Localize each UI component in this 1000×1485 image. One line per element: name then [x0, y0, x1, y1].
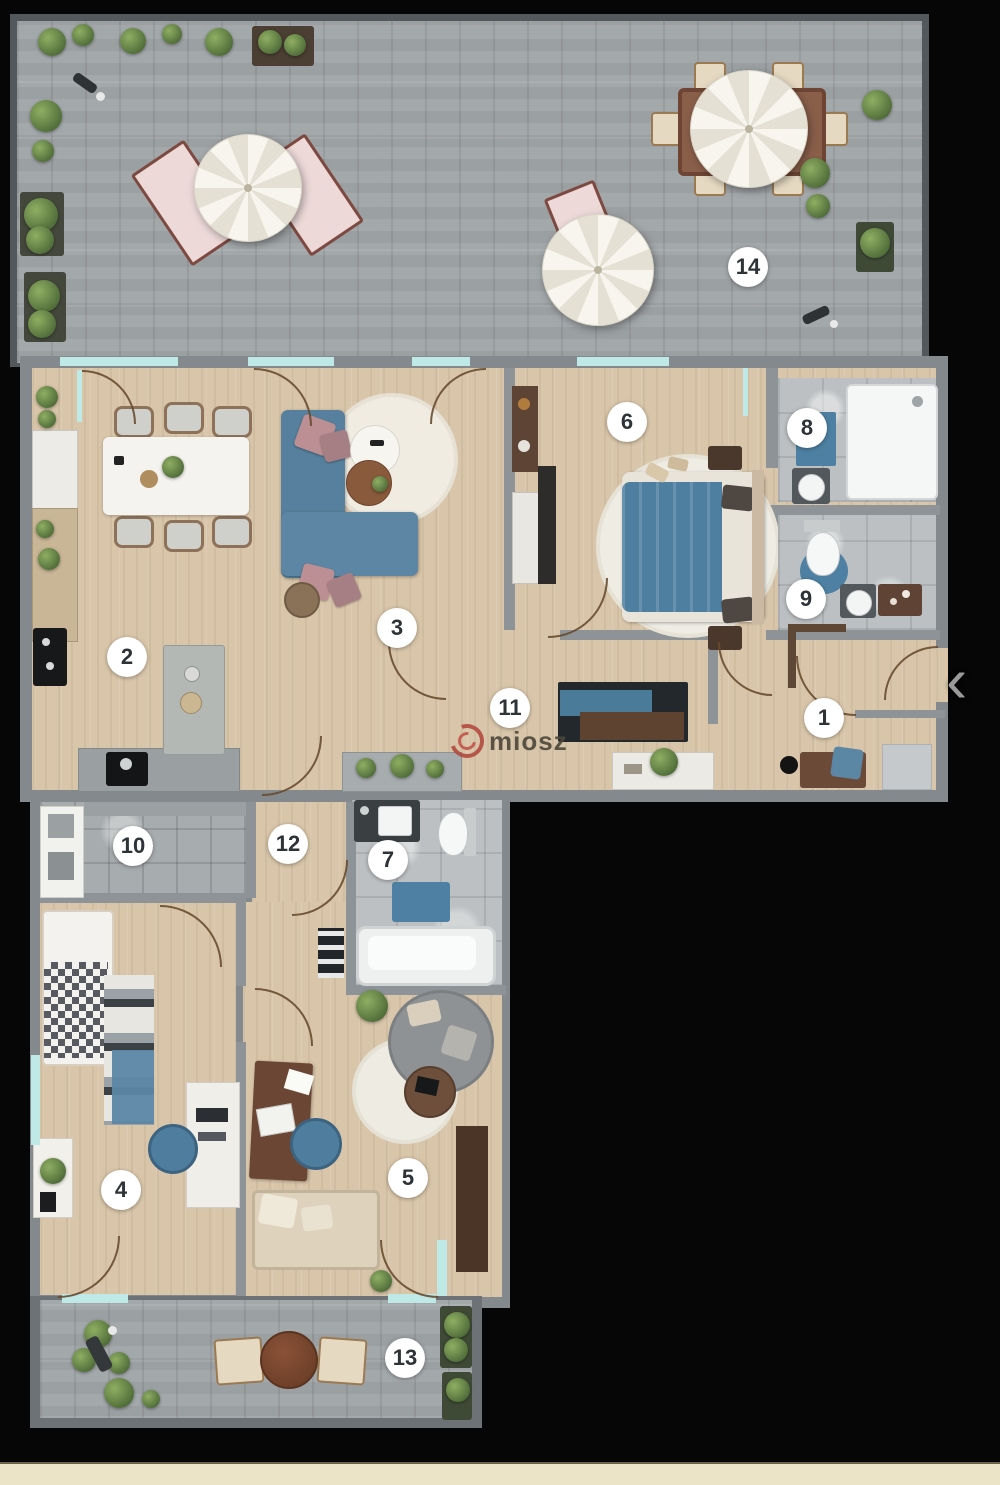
runner-rug: [580, 712, 684, 740]
plant: [32, 140, 54, 162]
plant: [38, 28, 66, 56]
room-label-5: 5: [388, 1158, 428, 1198]
bed-duvet: [622, 482, 722, 612]
soap-dish: [360, 806, 369, 815]
plant: [72, 24, 94, 46]
room-label-2: 2: [107, 637, 147, 677]
wardrobe: [512, 492, 540, 584]
plant: [26, 226, 54, 254]
sofa: [281, 512, 418, 576]
plant: [806, 194, 830, 218]
sofa-cushion: [300, 1204, 333, 1232]
shelf-decor: [518, 440, 530, 452]
room-label-13: 13: [385, 1338, 425, 1378]
dining-chair: [212, 406, 252, 438]
washer-door: [48, 814, 74, 838]
window: [577, 357, 669, 366]
room-label-3: 3: [377, 608, 417, 648]
window: [31, 1055, 40, 1145]
bed-pillow: [721, 484, 755, 511]
wall: [855, 710, 945, 718]
dining-chair: [212, 516, 252, 548]
table-decor: [114, 456, 124, 465]
desk-chair: [290, 1118, 342, 1170]
keyboard: [198, 1132, 226, 1141]
utility-counter: [84, 802, 246, 816]
pouf: [284, 582, 320, 618]
toilet: [806, 532, 840, 576]
decor-figure: [830, 320, 838, 328]
plant: [40, 1158, 66, 1184]
plant: [120, 28, 146, 54]
window: [743, 368, 748, 416]
dining-chair: [164, 520, 204, 552]
desk-chair: [148, 1124, 198, 1174]
watermark-logo-icon: [450, 724, 484, 758]
island-bowl: [180, 692, 202, 714]
room-label-8: 8: [787, 408, 827, 448]
island-sink: [184, 666, 200, 682]
watermark-text: miosz: [489, 726, 568, 757]
vanity-decor: [902, 590, 910, 598]
washer-door: [48, 852, 74, 880]
bed-pillow: [721, 596, 755, 623]
vanity-decor: [890, 598, 897, 605]
plant: [800, 158, 830, 188]
plant: [38, 410, 56, 428]
plant: [860, 228, 890, 258]
vase: [780, 756, 798, 774]
hall-closet: [788, 624, 796, 688]
bathtub-basin: [368, 936, 476, 970]
console-books: [624, 764, 642, 774]
table-centerpiece: [162, 456, 184, 478]
plant: [356, 990, 388, 1022]
dining-chair: [164, 402, 204, 434]
terrace-chair: [651, 112, 681, 146]
patio-umbrella: [690, 70, 808, 188]
room-label-1: 1: [804, 698, 844, 738]
wall: [766, 368, 778, 468]
plant: [38, 548, 60, 570]
plant: [444, 1312, 470, 1338]
sideboard: [456, 1126, 488, 1272]
doormat: [882, 744, 932, 790]
room-label-9: 9: [786, 579, 826, 619]
plant: [390, 754, 414, 778]
floorplan-image: 1 2 3 4 5 6 7 8 9 10 11 12 13 14 miosz ‹: [0, 0, 1000, 1485]
toilet: [438, 812, 468, 856]
speaker: [40, 1192, 56, 1212]
plant: [862, 90, 892, 120]
wall: [246, 802, 256, 898]
nightstand: [708, 446, 742, 470]
shower-tray: [846, 384, 938, 500]
plant: [370, 1270, 392, 1292]
room-label-11: 11: [490, 688, 530, 728]
decor-figure: [96, 92, 105, 101]
balcony-table: [260, 1331, 318, 1389]
window: [60, 357, 178, 366]
washbasin: [846, 590, 872, 616]
plant: [28, 310, 56, 338]
room-label-4: 4: [101, 1170, 141, 1210]
wall: [766, 505, 940, 515]
monitor: [196, 1108, 228, 1122]
room-label-10: 10: [113, 826, 153, 866]
balcony-chair: [316, 1336, 367, 1385]
plant: [426, 760, 444, 778]
previous-image-chevron-icon[interactable]: ‹: [946, 650, 967, 710]
watermark: miosz: [450, 724, 568, 758]
wall: [236, 902, 246, 986]
plant: [356, 758, 376, 778]
plant: [28, 280, 60, 312]
sofa-cushion: [258, 1193, 299, 1229]
bath-mat: [392, 882, 450, 922]
washbasin: [378, 806, 412, 836]
decor-figure: [108, 1326, 117, 1335]
window: [412, 357, 470, 366]
plant: [284, 34, 306, 56]
balcony-chair: [213, 1336, 264, 1385]
kitchen-cabinet: [32, 430, 78, 510]
toilet-tank: [804, 520, 840, 532]
plant: [205, 28, 233, 56]
plant: [142, 1390, 160, 1408]
rug-blue-patch: [112, 1050, 154, 1124]
plant: [30, 100, 62, 132]
page-background-band: [0, 1462, 1000, 1485]
shower-drain: [912, 396, 923, 407]
vanity-shelf: [878, 584, 922, 616]
plant: [258, 30, 282, 54]
bed-duvet-pattern: [44, 962, 108, 1058]
headboard: [752, 470, 764, 624]
plant: [162, 24, 182, 44]
dining-chair: [114, 516, 154, 548]
cooktop-burner: [42, 638, 50, 646]
window: [248, 357, 334, 366]
hall-closet: [788, 624, 846, 632]
plant: [444, 1338, 468, 1362]
towel-shelf: [318, 928, 344, 978]
room-label-7: 7: [368, 840, 408, 880]
patio-umbrella: [542, 214, 654, 326]
plant: [104, 1378, 134, 1408]
plant: [650, 748, 678, 776]
balcony-door-glass: [437, 1240, 447, 1298]
table-plate: [140, 470, 158, 488]
faucet: [120, 758, 132, 770]
shelf-decor: [518, 398, 530, 410]
room-label-6: 6: [607, 402, 647, 442]
plant: [372, 476, 388, 492]
washbasin: [798, 474, 825, 501]
room-label-12: 12: [268, 824, 308, 864]
cooktop-burner: [46, 662, 54, 670]
remote: [370, 440, 384, 446]
patio-umbrella: [194, 134, 302, 242]
tv-panel: [538, 466, 556, 584]
bench-pillow: [830, 746, 864, 780]
plant: [446, 1378, 470, 1402]
plant: [36, 386, 58, 408]
room-label-14: 14: [728, 247, 768, 287]
cooktop: [33, 628, 67, 686]
plant: [36, 520, 54, 538]
